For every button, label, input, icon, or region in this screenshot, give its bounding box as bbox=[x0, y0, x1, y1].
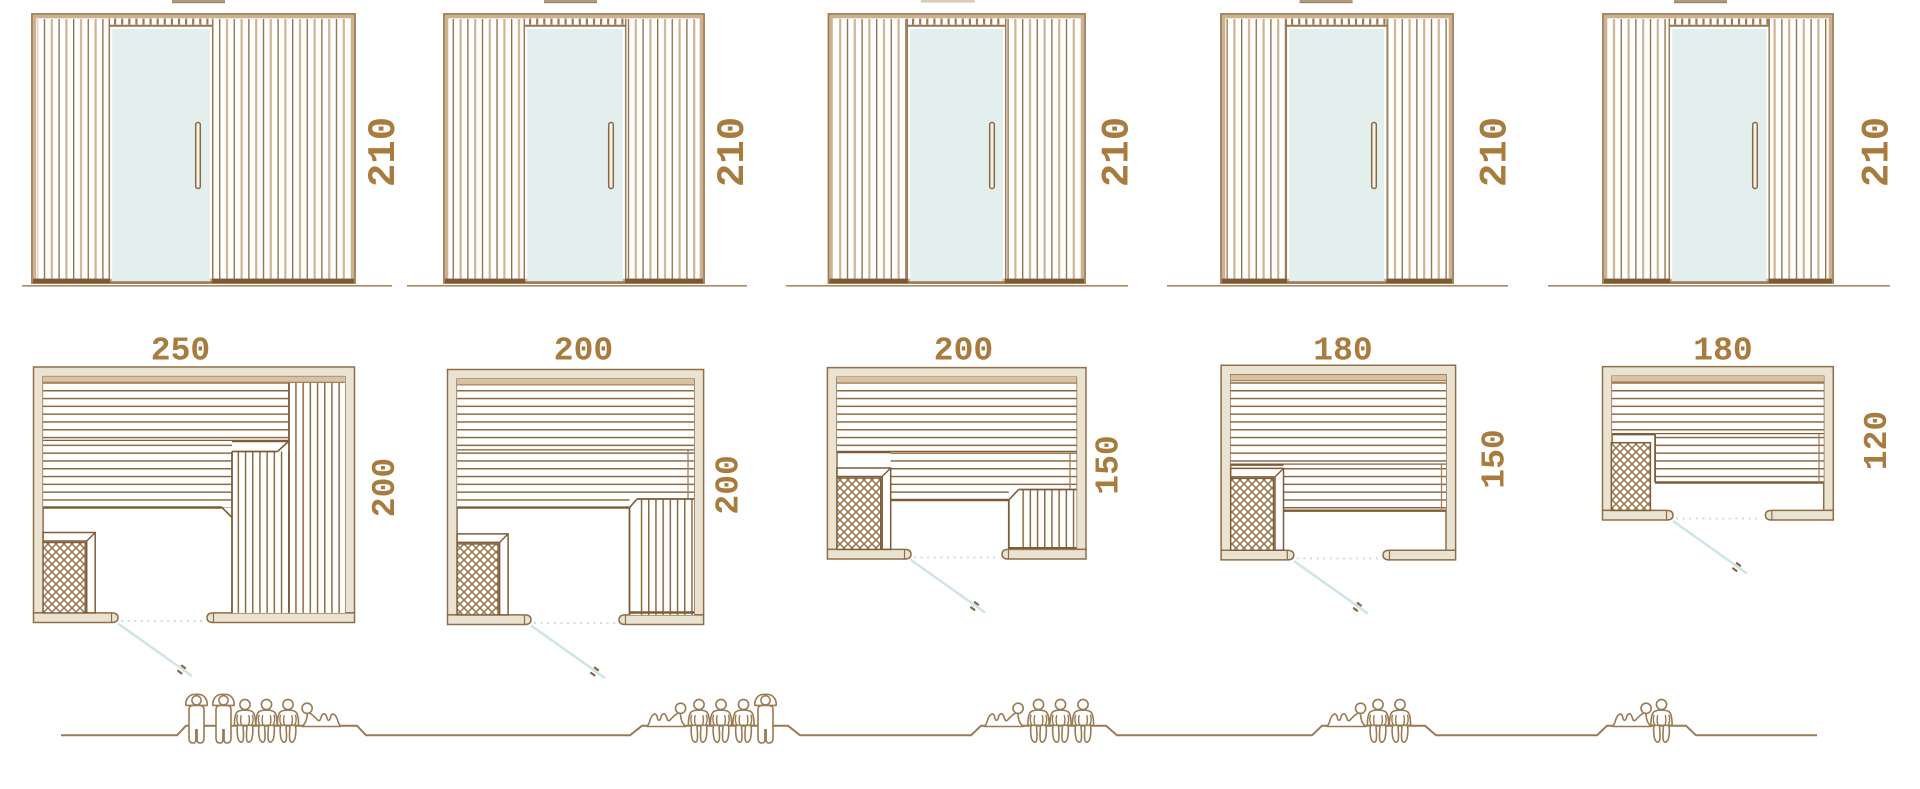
svg-text:150: 150 bbox=[1477, 429, 1514, 488]
svg-text:150: 150 bbox=[1090, 435, 1127, 494]
svg-text:250: 250 bbox=[151, 333, 210, 370]
svg-text:200: 200 bbox=[367, 458, 404, 517]
svg-text:210: 210 bbox=[1096, 117, 1140, 187]
svg-text:210: 210 bbox=[1474, 117, 1518, 187]
svg-text:210: 210 bbox=[711, 117, 755, 187]
svg-text:180: 180 bbox=[1693, 333, 1752, 370]
svg-text:200: 200 bbox=[554, 333, 613, 370]
svg-text:210: 210 bbox=[362, 117, 406, 187]
svg-text:200: 200 bbox=[934, 333, 993, 370]
svg-text:120: 120 bbox=[1859, 411, 1896, 470]
svg-text:180: 180 bbox=[1313, 333, 1372, 370]
svg-text:200: 200 bbox=[710, 455, 747, 514]
svg-text:210: 210 bbox=[1856, 117, 1900, 187]
